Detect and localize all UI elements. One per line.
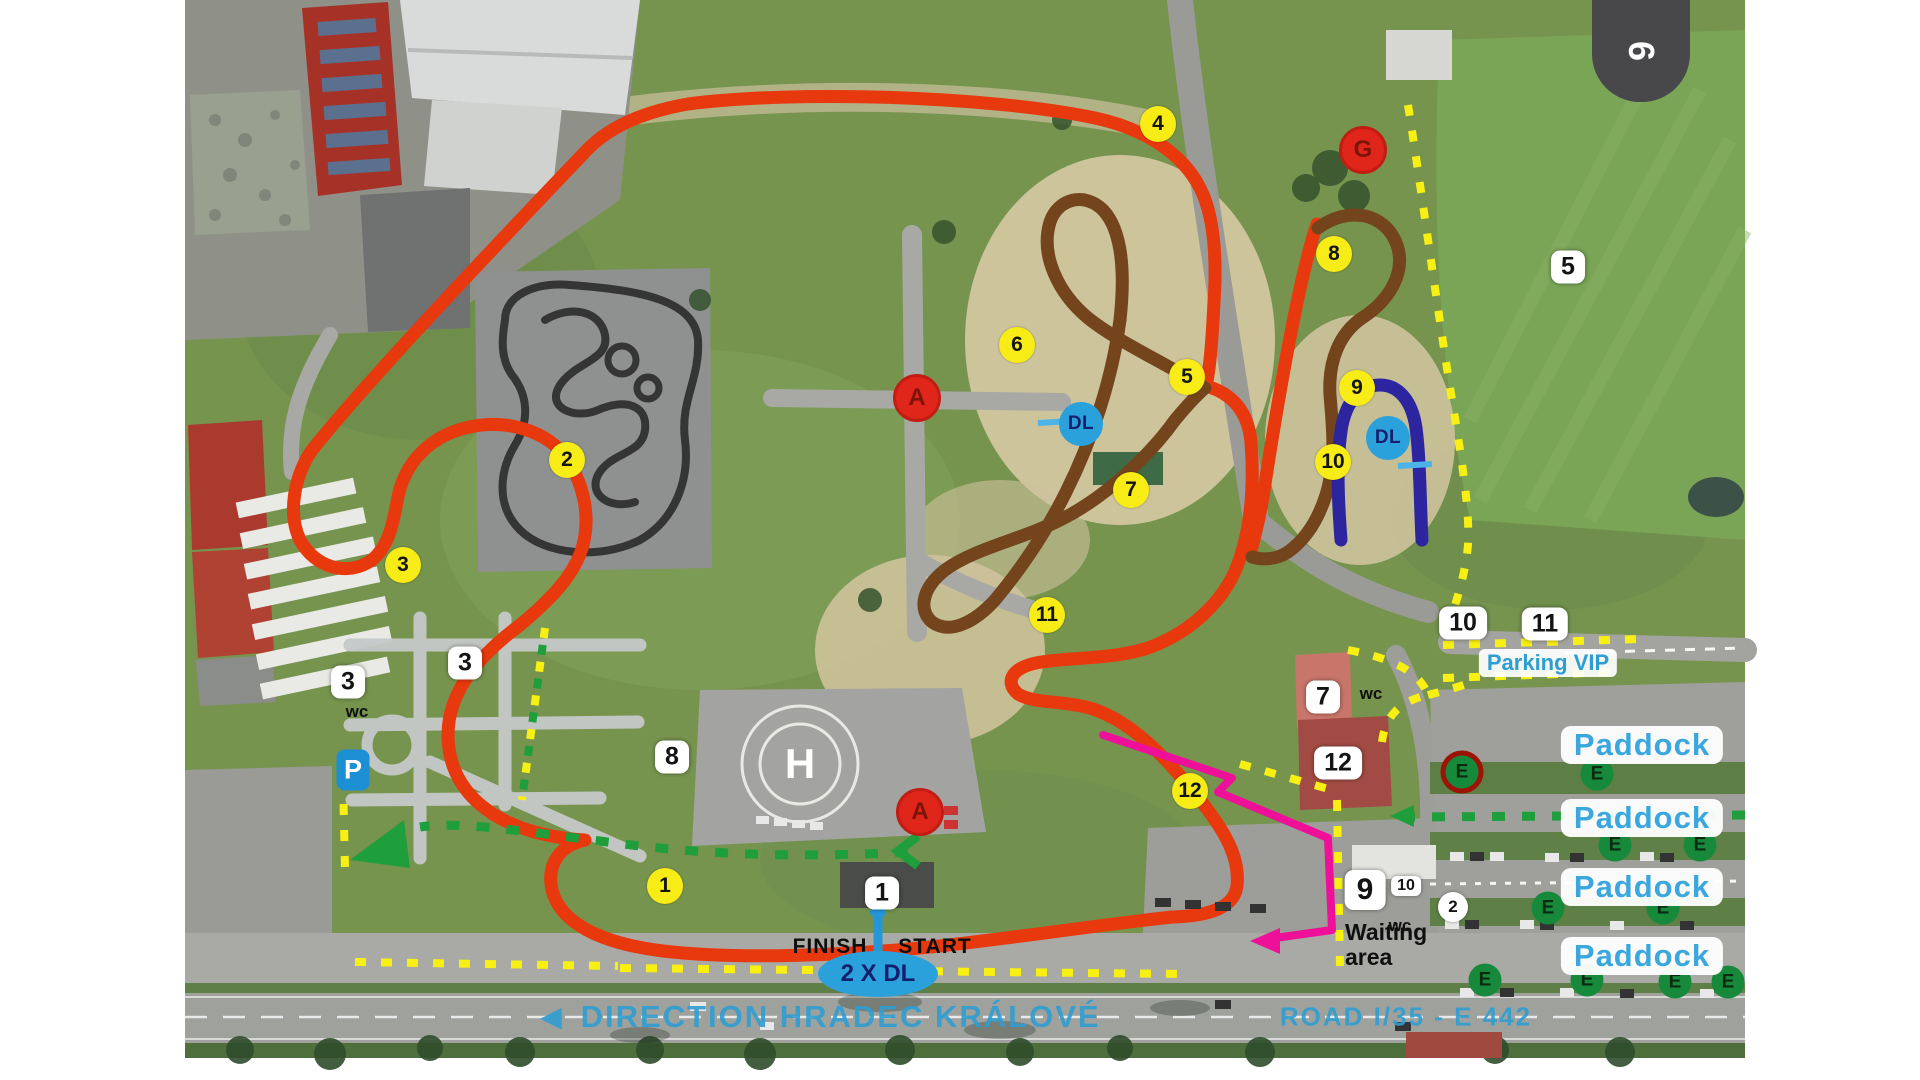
waiting-area-label: Waiting area [1345, 920, 1427, 971]
road-number-label: ROAD I/35 - E 442 [1280, 1002, 1532, 1033]
page-number-badge: 6 [1592, 0, 1690, 102]
corner-marker-7: 7 [1113, 472, 1149, 508]
direction-text: DIRECTION HRADEC KRÁLOVÉ [581, 999, 1101, 1035]
post-a-lower: A [896, 788, 944, 836]
dl-marker-handling: DL [1366, 416, 1410, 460]
helipad-h: H [785, 740, 815, 788]
aerial-photo-base [0, 0, 1920, 1080]
post-g: G [1339, 126, 1387, 174]
waiting-area-line1: Waiting [1345, 920, 1427, 945]
corner-marker-2: 2 [549, 442, 585, 478]
zone-10-vip: 10 [1439, 607, 1487, 640]
zone-3-school: 3 [448, 647, 482, 680]
parking-vip-label: Parking VIP [1479, 649, 1617, 677]
parking-sign: P [337, 750, 370, 791]
zone-1: 1 [865, 877, 899, 910]
corner-marker-4: 4 [1140, 106, 1176, 142]
paddock-label-1: Paddock [1561, 726, 1723, 764]
paddock-e-marker-ringed: E [1441, 751, 1484, 794]
page-number: 6 [1620, 41, 1662, 61]
direction-arrow-icon: ◄ [533, 996, 571, 1038]
corner-marker-5: 5 [1169, 359, 1205, 395]
zone-7: 7 [1306, 681, 1340, 714]
zone-11-vip: 11 [1522, 608, 1568, 641]
zone-8: 8 [655, 741, 689, 774]
zone-12: 12 [1314, 747, 1362, 780]
paddock-label-3: Paddock [1561, 868, 1723, 906]
paddock-e-marker: E [1469, 964, 1502, 997]
zone-10-small: 10 [1391, 876, 1421, 896]
corner-marker-9: 9 [1339, 370, 1375, 406]
zone-2-circle: 2 [1438, 892, 1468, 922]
circuit-map: 1 2 3 4 5 6 7 8 9 10 11 12 DL DL A A G 3… [0, 0, 1920, 1080]
start-dl-note: 2 X DL [818, 951, 938, 997]
paddock-label-2: Paddock [1561, 799, 1723, 837]
post-a-upper: A [893, 374, 941, 422]
zone-3-left: 3 [331, 666, 365, 699]
paddock-e-marker: E [1532, 892, 1565, 925]
zone-5: 5 [1551, 251, 1585, 284]
zone-9: 9 [1345, 870, 1386, 910]
corner-marker-6: 6 [999, 327, 1035, 363]
corner-marker-11: 11 [1029, 597, 1065, 633]
corner-marker-1: 1 [647, 868, 683, 904]
corner-marker-3: 3 [385, 547, 421, 583]
wc-label-school: wc [346, 702, 369, 722]
direction-label: ◄ DIRECTION HRADEC KRÁLOVÉ [533, 996, 1101, 1038]
corner-marker-10: 10 [1315, 444, 1351, 480]
paddock-label-4: Paddock [1561, 937, 1723, 975]
waiting-area-line2: area [1345, 945, 1427, 970]
corner-marker-8: 8 [1316, 236, 1352, 272]
corner-marker-12: 12 [1172, 773, 1208, 809]
wc-label-7: wc [1360, 684, 1383, 704]
dl-marker-offroad: DL [1059, 402, 1103, 446]
